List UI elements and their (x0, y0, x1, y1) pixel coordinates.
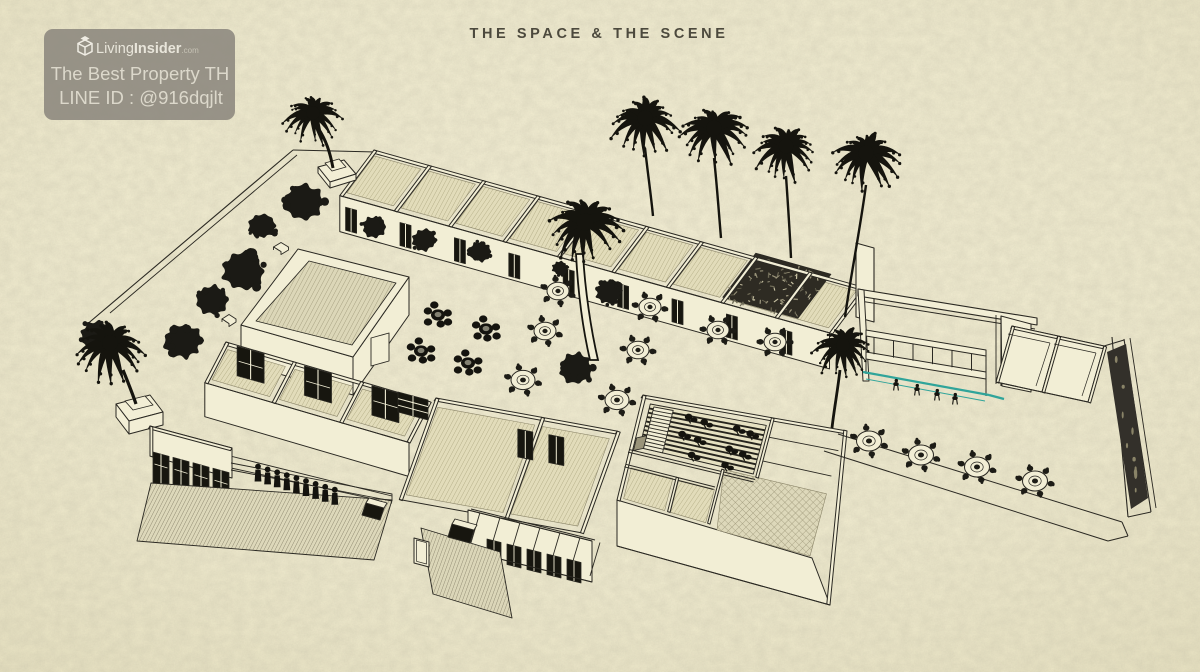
svg-text:The Best Property TH: The Best Property TH (51, 63, 230, 84)
svg-text:LINE ID : @916dqjlt: LINE ID : @916dqjlt (59, 87, 223, 108)
svg-text:THE SPACE & THE SCENE: THE SPACE & THE SCENE (469, 26, 728, 42)
